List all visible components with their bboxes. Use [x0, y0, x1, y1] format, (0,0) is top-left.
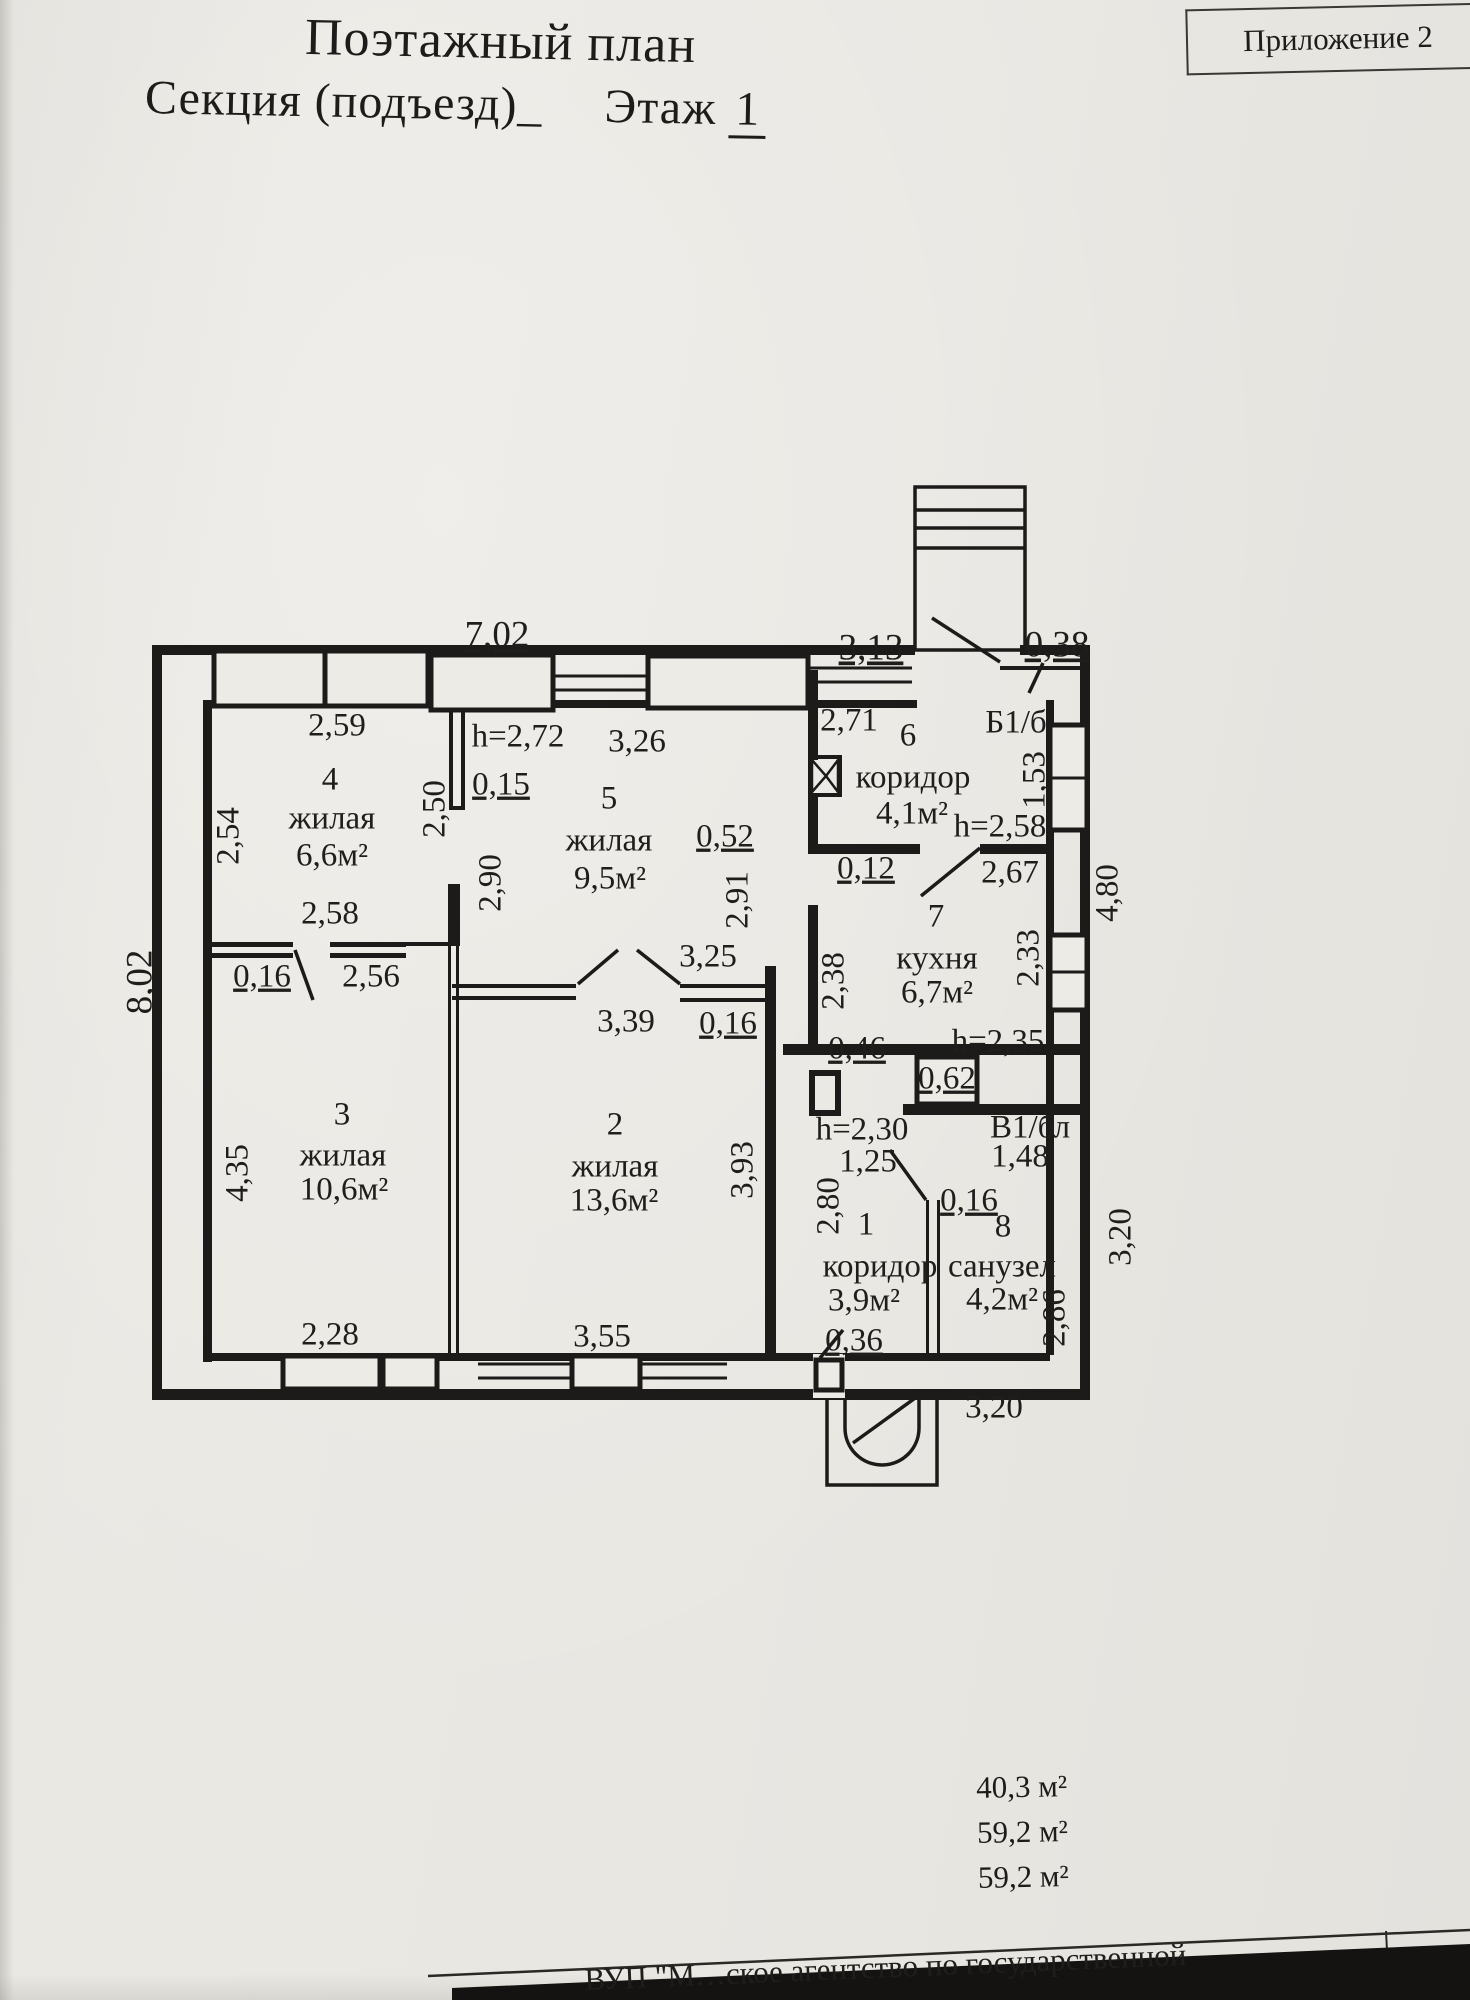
dimension-label: 6,7м²	[901, 975, 973, 1011]
dimension-label: 0,46	[828, 1031, 886, 1067]
room-label: жилая	[571, 1149, 659, 1185]
dimension-label: 2,33	[1011, 929, 1047, 987]
room-label: кухня	[896, 941, 977, 977]
dimension-label: h=2,58	[954, 809, 1047, 845]
dimension-label: 3,26	[608, 724, 666, 760]
dimension-label: 3,9м²	[828, 1283, 900, 1319]
dimension-label: 0,16	[940, 1183, 998, 1219]
room-label: санузел	[948, 1249, 1056, 1285]
entrance-doorway	[813, 1354, 845, 1398]
room2-door-leaf-right	[637, 950, 680, 984]
appendix-label: Приложение 2	[1243, 19, 1433, 59]
dimension-label: 4,2м²	[966, 1282, 1038, 1318]
dimension-label: 3,55	[573, 1319, 631, 1355]
dimension-label: 8	[995, 1209, 1012, 1245]
dimension-label: 0,62	[918, 1061, 976, 1097]
dimension-label: 3,20	[965, 1390, 1023, 1426]
kitchen-door-leaf	[921, 848, 980, 896]
dimension-label: 3,39	[597, 1004, 655, 1040]
dimension-label: 3,13	[839, 627, 904, 668]
dimension-label: 2,59	[308, 708, 366, 744]
dimension-label: 0,12	[837, 851, 895, 887]
dimension-label: 8,02	[119, 950, 160, 1015]
dimension-label: 2,71	[820, 703, 878, 739]
shaft-door-leaf	[932, 618, 1000, 662]
dimension-label: 0,16	[699, 1006, 757, 1042]
section-label: Секция (подъезд)_	[145, 71, 544, 132]
dimension-label: 7,02	[465, 614, 530, 655]
room2-door-leaf-left	[578, 950, 618, 984]
room-label: коридор	[823, 1249, 938, 1285]
dimension-label: 3	[334, 1097, 351, 1133]
dimension-label: 6,6м²	[296, 838, 368, 874]
dimension-label: 10,6м²	[300, 1172, 389, 1208]
dimension-label: 2,80	[811, 1177, 847, 1235]
area-summary: 40,3 м² 59,2 м² 59,2 м²	[976, 1763, 1069, 1900]
dimension-label: 2,50	[417, 780, 453, 838]
page-title: Поэтажный план	[304, 8, 696, 75]
dimension-label: 5	[601, 781, 618, 817]
dimension-label: 2,91	[720, 871, 756, 929]
dimension-label: h=2,30	[816, 1112, 909, 1148]
dimension-label: 2,67	[981, 855, 1039, 891]
dimension-label: 1,48	[991, 1139, 1049, 1175]
room-label: Б1/б	[985, 705, 1046, 741]
entrance-porch	[827, 1394, 937, 1485]
plan-labels: 7,023,130,382,594жилая6,6м²2,542,50h=2,7…	[119, 614, 1138, 1425]
floor-number: 1	[729, 82, 767, 139]
dimension-label: 1,25	[839, 1144, 897, 1180]
area-total-line: 40,3 м²	[976, 1763, 1068, 1810]
dimension-label: 7	[928, 899, 945, 935]
dimension-label: 4,1м²	[876, 796, 948, 832]
dimension-label: 9,5м²	[574, 861, 646, 897]
room-label: коридор	[856, 760, 971, 796]
dimension-label: 2,28	[301, 1317, 359, 1353]
area-line-2: 59,2 м²	[977, 1808, 1069, 1855]
area-line-3: 59,2 м²	[978, 1853, 1070, 1900]
dimension-label: 4,35	[220, 1144, 256, 1202]
dimension-label: 2,58	[301, 896, 359, 932]
dimension-label: 1,53	[1017, 751, 1053, 809]
dimension-label: 2	[607, 1107, 624, 1143]
dimension-label: 0,36	[825, 1323, 883, 1359]
dimension-label: 2,54	[211, 807, 247, 865]
entrance-door-leaf	[853, 1396, 918, 1443]
floor-plan-drawing: 7,023,130,382,594жилая6,6м²2,542,50h=2,7…	[0, 0, 1470, 2000]
dimension-label: 2,56	[342, 959, 400, 995]
dimension-label: 0,15	[472, 767, 530, 803]
scanned-document-page: Поэтажный план Секция (подъезд)_Этаж 1 П…	[0, 0, 1470, 2000]
dimension-label: 2,86	[1037, 1289, 1073, 1347]
dimension-label: 0,38	[1025, 624, 1090, 665]
dimension-label: 4	[322, 762, 339, 798]
floor-label: Этаж	[604, 80, 717, 135]
dimension-label: 1	[858, 1207, 875, 1243]
dimension-label: h=2,72	[472, 719, 565, 755]
dimension-label: 4,80	[1090, 864, 1126, 922]
dimension-label: 2,38	[816, 952, 852, 1010]
room3-door-leaf	[295, 950, 313, 1000]
dimension-label: 3,25	[679, 939, 737, 975]
room-label: жилая	[299, 1138, 387, 1174]
dimension-label: 13,6м²	[570, 1183, 659, 1219]
room-label: жилая	[288, 801, 376, 837]
dimension-label: 6	[900, 718, 917, 754]
room-label: жилая	[565, 823, 653, 859]
dimension-label: 2,90	[473, 854, 509, 912]
dimension-label: 3,93	[725, 1141, 761, 1199]
dimension-label: 0,52	[696, 819, 754, 855]
dimension-label: 0,16	[233, 959, 291, 995]
dimension-label: 3,20	[1103, 1208, 1139, 1266]
dimension-label: h=2,35	[952, 1024, 1045, 1060]
appendix-frame: Приложение 2	[1185, 3, 1470, 76]
